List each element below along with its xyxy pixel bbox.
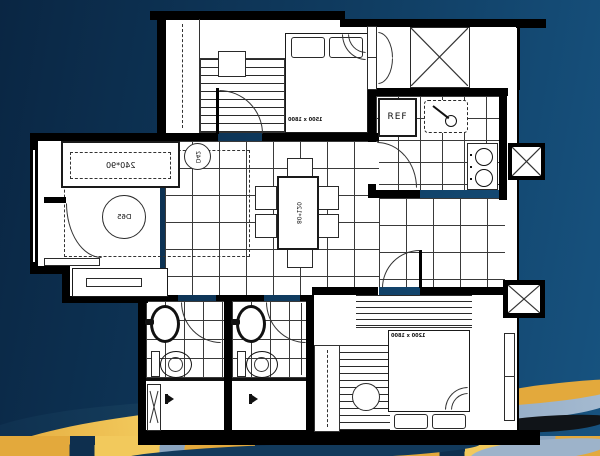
- stool-master: [218, 51, 246, 77]
- bed-master: 1500 x 1800: [285, 33, 368, 133]
- wall-kitchen-bottom: [368, 190, 420, 198]
- stove-knob: [470, 178, 472, 180]
- bath1-slim-cabinet: [147, 384, 161, 431]
- side-table-label: D42: [194, 150, 200, 162]
- dining-chair: [255, 214, 277, 238]
- shaft-right-upper: [508, 143, 545, 180]
- wall-bath-top-c: [300, 295, 312, 301]
- wall-bedroom2-top-a: [312, 287, 378, 295]
- balcony-decking: [356, 295, 472, 328]
- stove-knob: [470, 166, 472, 168]
- bath1-shower-divider: [146, 378, 224, 381]
- wall-bath-top-b: [216, 295, 264, 301]
- sink-faucet-icon: [432, 105, 449, 119]
- stove: [467, 143, 498, 190]
- pillow: [394, 414, 428, 429]
- bath1-faucet-icon: [145, 319, 154, 325]
- wall-right-thin: [517, 26, 520, 90]
- pillow: [432, 414, 466, 429]
- bath2-toilet-tank: [237, 351, 246, 377]
- bed-second-dim-label: 1200 x 1800: [391, 334, 426, 339]
- stool-second: [352, 383, 380, 411]
- stove-knob: [470, 154, 472, 156]
- burner-icon: [475, 148, 493, 166]
- sofa-dim-label: 240*90: [106, 162, 135, 170]
- wall-living-top: [30, 133, 160, 141]
- coffee-table: D65: [102, 195, 146, 239]
- x-cross-icon: [508, 285, 540, 313]
- bath2-shower-divider: [232, 378, 306, 381]
- bath2-faucet-icon: [231, 319, 240, 325]
- bath1-shower-spray-icon: [168, 395, 174, 403]
- door-leaf-balcony: [44, 197, 66, 203]
- bath2-basin: [236, 305, 266, 343]
- tv-console: [72, 268, 168, 297]
- side-table: D42: [184, 143, 211, 170]
- wall-top-nub: [516, 19, 546, 28]
- wall-kitchen-right: [499, 88, 507, 200]
- fridge-label: REF: [387, 113, 407, 122]
- dining-chair: [317, 186, 339, 210]
- scene: 1500 x 1800 REF: [0, 0, 600, 456]
- wall-under-bedroom-a: [157, 133, 218, 141]
- bath1-basin: [150, 305, 180, 343]
- floor-plan: 1500 x 1800 REF: [0, 0, 600, 456]
- bath2-shower-spray-icon: [252, 395, 258, 403]
- dining-table: 80*120: [277, 176, 319, 250]
- shaft-top: [410, 27, 470, 88]
- burner-icon: [475, 169, 493, 187]
- wall-bottom: [138, 430, 540, 445]
- window-mullion-second: [504, 333, 515, 421]
- bath1-toilet-tank: [151, 351, 160, 377]
- sofa: 240*90: [61, 141, 180, 188]
- x-cross-icon: [512, 147, 541, 176]
- wall-bedroom2-top-b: [420, 287, 505, 295]
- dining-chair: [255, 186, 277, 210]
- dining-table-label: 80*120: [295, 202, 301, 224]
- wall-bath-bedroom: [306, 295, 314, 432]
- window-left: [33, 150, 35, 262]
- bath1-toilet-seat: [168, 357, 183, 372]
- cabinet-cross-icon: [148, 385, 160, 429]
- coffee-table-label: D65: [117, 214, 131, 221]
- sill-shelf: [44, 258, 100, 266]
- shaft-right-lower: [503, 280, 545, 318]
- kitchen-sink: [424, 100, 468, 133]
- tv-unit: [86, 278, 142, 287]
- closet-slide-track: [182, 24, 183, 128]
- bath2-toilet-seat: [254, 357, 269, 372]
- bed-master-dim-label: 1500 x 1800: [288, 118, 323, 123]
- dining-chair: [317, 214, 339, 238]
- wall-bath-left-outer: [138, 295, 146, 445]
- wall-kitchen-left: [368, 88, 376, 142]
- pillow: [291, 37, 325, 58]
- wall-kitchen-top: [368, 88, 508, 96]
- x-cross-icon: [411, 28, 468, 86]
- sofa-seat: 240*90: [70, 152, 171, 179]
- wall-bath-divider: [224, 295, 232, 432]
- window-mullion-master: [367, 26, 377, 90]
- wall-under-bedroom-b: [262, 133, 379, 141]
- wall-living-bottom: [62, 296, 148, 303]
- window-mullion-line: [368, 57, 376, 58]
- window-mullion-line: [504, 376, 515, 377]
- wardrobe-second-track: [327, 350, 328, 427]
- fridge: REF: [378, 98, 417, 137]
- bath2-glass-panel: [301, 303, 302, 375]
- bed-second: 1200 x 1800: [388, 330, 470, 412]
